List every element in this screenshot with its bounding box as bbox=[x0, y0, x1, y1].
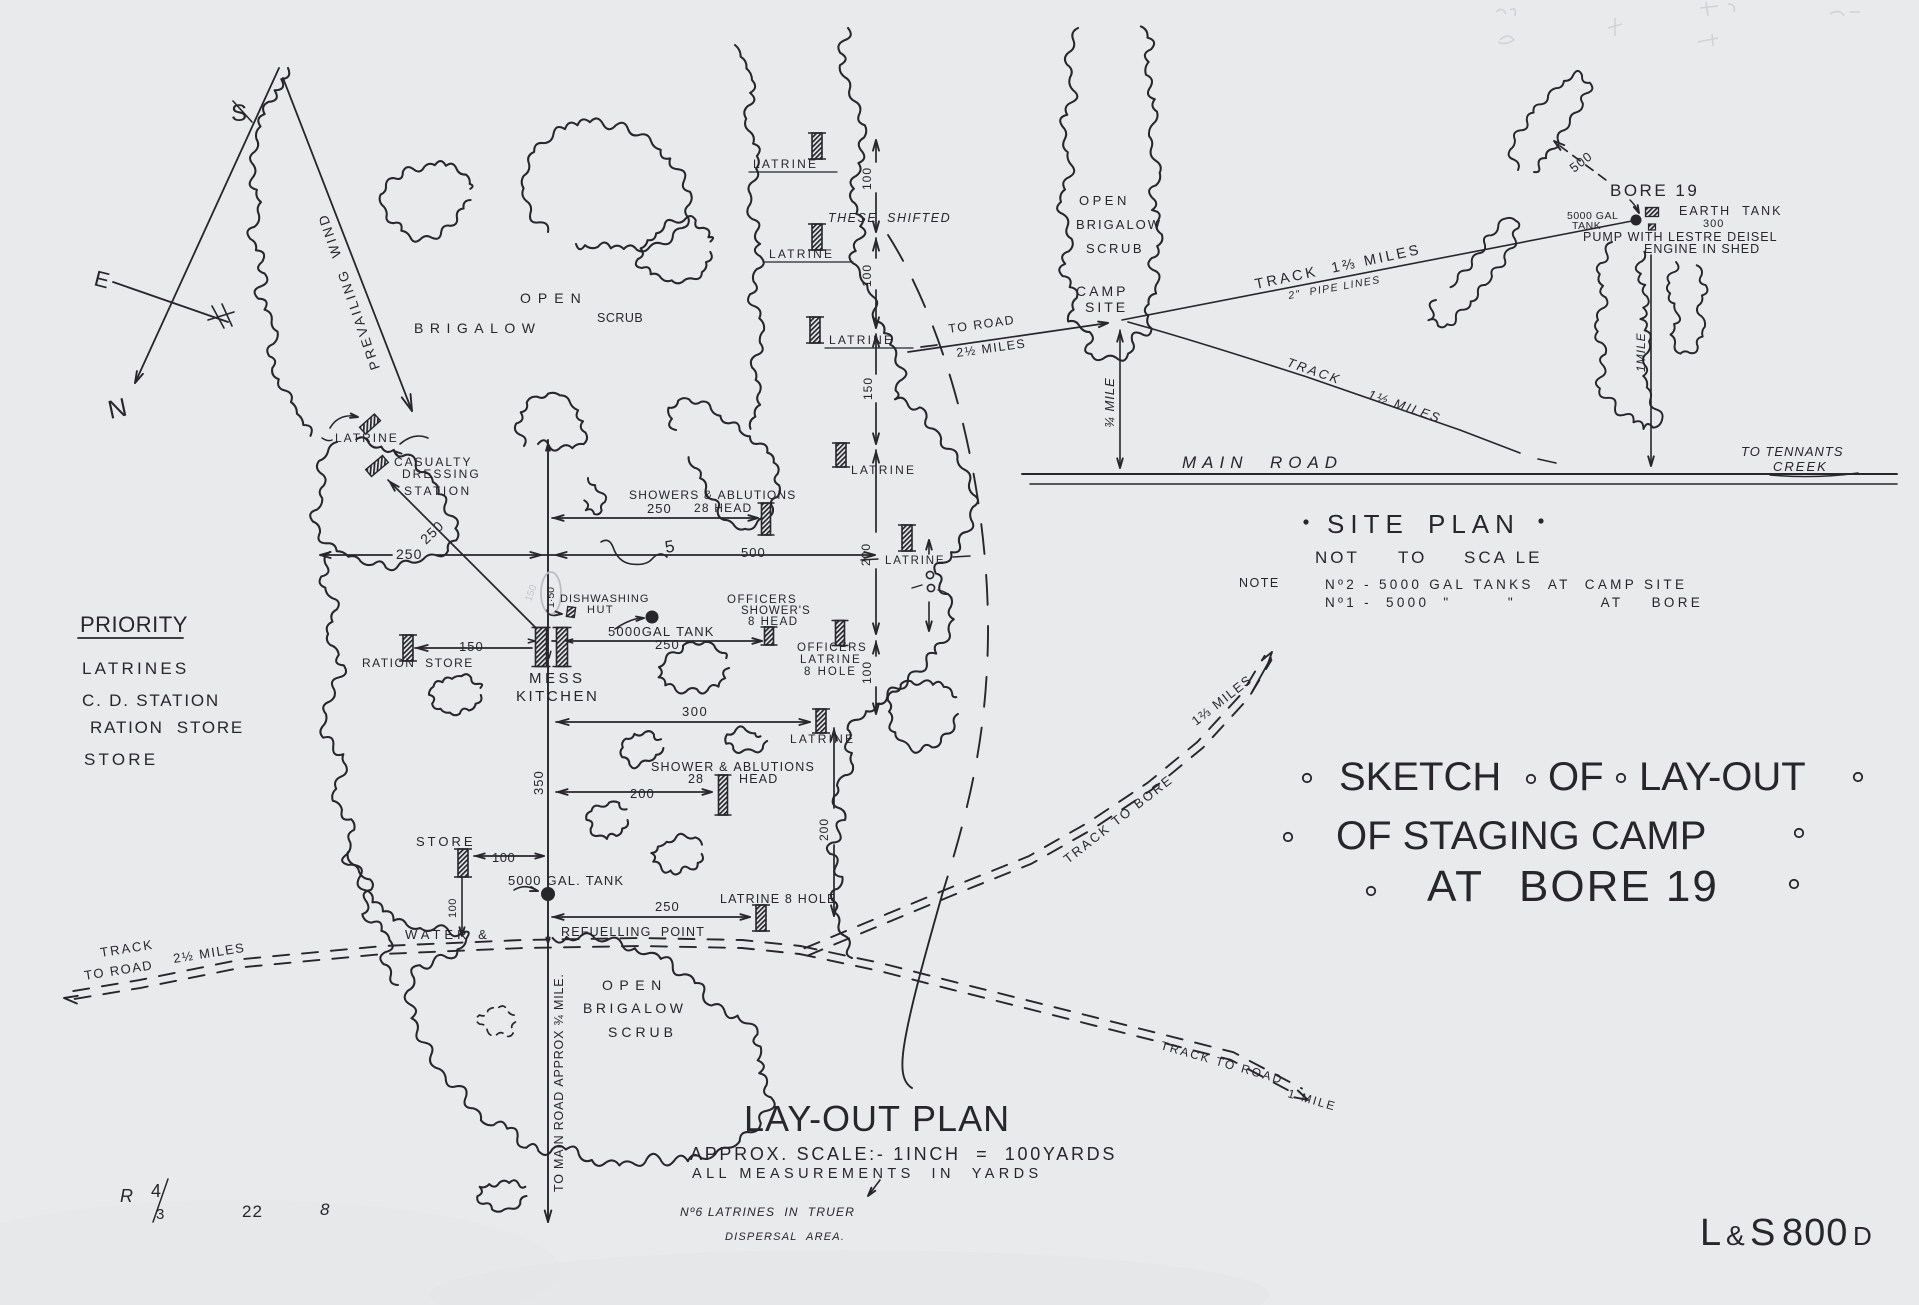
svg-text:SITE: SITE bbox=[1085, 299, 1128, 315]
svg-text:250: 250 bbox=[647, 501, 672, 516]
svg-text:LATRINE 8 HOLE: LATRINE 8 HOLE bbox=[720, 892, 837, 906]
svg-text:250: 250 bbox=[655, 899, 680, 914]
svg-text:150: 150 bbox=[861, 377, 875, 400]
svg-text:STATION: STATION bbox=[404, 484, 472, 498]
svg-text:TO: TO bbox=[1398, 548, 1427, 567]
svg-text:BRIGALOW: BRIGALOW bbox=[1076, 217, 1162, 232]
svg-text:APPROX. SCALE:- 1INCH = 100Y: APPROX. SCALE:- 1INCH = 100YARDS bbox=[690, 1144, 1117, 1164]
svg-text:EARTH TANK: EARTH TANK bbox=[1679, 204, 1783, 218]
svg-text:DISPERSAL AREA.: DISPERSAL AREA. bbox=[725, 1231, 845, 1243]
svg-text:LATRINE: LATRINE bbox=[851, 463, 916, 477]
svg-text:SCA LE: SCA LE bbox=[1464, 548, 1542, 567]
svg-text:LATRINE: LATRINE bbox=[335, 431, 399, 445]
svg-text:D: D bbox=[1853, 1221, 1872, 1251]
svg-text:500: 500 bbox=[741, 545, 766, 560]
svg-text:SHOWERS & ABLUTIONS: SHOWERS & ABLUTIONS bbox=[629, 488, 797, 502]
svg-text:LATRINE: LATRINE bbox=[800, 654, 862, 666]
svg-text:OPEN: OPEN bbox=[1079, 193, 1130, 208]
svg-text:OFFICERS: OFFICERS bbox=[797, 642, 867, 654]
svg-text:Nº2 - 5000 GAL TANKS AT CAMP: Nº2 - 5000 GAL TANKS AT CAMP SITE bbox=[1325, 577, 1687, 592]
svg-text:OPEN: OPEN bbox=[520, 290, 588, 306]
svg-text:8: 8 bbox=[320, 1200, 330, 1219]
svg-text:4: 4 bbox=[151, 1181, 161, 1201]
svg-text:300: 300 bbox=[682, 704, 708, 719]
svg-text:28: 28 bbox=[688, 772, 704, 786]
svg-text:L: L bbox=[1700, 1212, 1722, 1254]
svg-text:SITE: SITE bbox=[1327, 509, 1409, 539]
svg-text:SCRUB: SCRUB bbox=[597, 311, 643, 325]
svg-text:AT: AT bbox=[1427, 862, 1484, 911]
svg-text:KITCHEN: KITCHEN bbox=[516, 688, 599, 705]
svg-text:S: S bbox=[1750, 1212, 1776, 1254]
svg-text:C. D. STATION: C. D. STATION bbox=[82, 691, 220, 710]
svg-text:LATRINE: LATRINE bbox=[753, 157, 818, 171]
svg-text:100: 100 bbox=[860, 167, 874, 190]
svg-text:1·50: 1·50 bbox=[545, 587, 557, 608]
svg-text:&: & bbox=[1726, 1220, 1746, 1251]
svg-text:OPEN: OPEN bbox=[602, 977, 668, 993]
svg-text:PRIORITY: PRIORITY bbox=[80, 612, 188, 637]
svg-text:PLAN: PLAN bbox=[1428, 509, 1520, 539]
svg-text:HEAD: HEAD bbox=[739, 772, 779, 786]
svg-text:R: R bbox=[120, 1186, 133, 1206]
svg-text:LAY-OUT: LAY-OUT bbox=[1639, 755, 1806, 799]
svg-text:22: 22 bbox=[242, 1202, 263, 1221]
svg-text:200: 200 bbox=[630, 786, 655, 801]
svg-text:100: 100 bbox=[860, 661, 874, 684]
svg-text:TO TENNANTS: TO TENNANTS bbox=[1741, 444, 1844, 459]
svg-text:MAIN ROAD: MAIN ROAD bbox=[1182, 453, 1343, 472]
svg-text:BRIGALOW: BRIGALOW bbox=[414, 320, 541, 336]
svg-text:CREEK: CREEK bbox=[1773, 459, 1828, 474]
svg-text:LAY-OUT PLAN: LAY-OUT PLAN bbox=[744, 1098, 1010, 1139]
svg-text:300: 300 bbox=[1703, 218, 1724, 230]
svg-text:LATRINE: LATRINE bbox=[885, 555, 945, 567]
svg-text:8 HEAD: 8 HEAD bbox=[748, 616, 799, 628]
svg-text:5000 GAL. TANK: 5000 GAL. TANK bbox=[508, 873, 624, 888]
svg-text:Nº1 - 5000 " ": Nº1 - 5000 " " AT BORE bbox=[1325, 595, 1703, 610]
svg-text:ALL MEASUREMENTS IN YARDS: ALL MEASUREMENTS IN YARDS bbox=[692, 1166, 1043, 1182]
svg-text:LATRINE: LATRINE bbox=[829, 333, 894, 347]
svg-text:LATRINE: LATRINE bbox=[790, 732, 855, 746]
svg-text:RATION STORE: RATION STORE bbox=[90, 718, 244, 737]
svg-text:100: 100 bbox=[447, 898, 459, 918]
svg-text:NOTE: NOTE bbox=[1239, 576, 1280, 590]
svg-text:100: 100 bbox=[860, 264, 874, 287]
svg-text:STORE: STORE bbox=[416, 834, 476, 849]
svg-text:OF: OF bbox=[1548, 755, 1604, 799]
svg-text:HUT: HUT bbox=[587, 604, 614, 616]
svg-text:800: 800 bbox=[1782, 1212, 1848, 1254]
svg-text:ENGINE IN SHED: ENGINE IN SHED bbox=[1644, 242, 1760, 256]
svg-text:Nº6 LATRINES IN TRUER: Nº6 LATRINES IN TRUER bbox=[680, 1205, 855, 1219]
svg-text:250: 250 bbox=[655, 637, 680, 652]
svg-text:BORE 19: BORE 19 bbox=[1610, 181, 1699, 200]
svg-text:350: 350 bbox=[531, 770, 546, 795]
svg-text:200: 200 bbox=[817, 818, 831, 841]
svg-text:3: 3 bbox=[156, 1206, 164, 1223]
svg-text:250: 250 bbox=[396, 546, 422, 562]
svg-text:BORE 19: BORE 19 bbox=[1519, 862, 1719, 911]
svg-text:TO MAIN ROAD APPROX ¾ MILE.: TO MAIN ROAD APPROX ¾ MILE. bbox=[552, 973, 566, 1192]
svg-text:REFUELLING POINT: REFUELLING POINT bbox=[561, 925, 705, 939]
svg-text:SCRUB: SCRUB bbox=[1086, 241, 1144, 256]
svg-text:WATER &: WATER & bbox=[405, 927, 491, 942]
svg-text:CAMP: CAMP bbox=[1076, 283, 1128, 299]
svg-text:¾ MILE: ¾ MILE bbox=[1102, 377, 1117, 428]
svg-text:28 HEAD: 28 HEAD bbox=[694, 501, 752, 515]
svg-text:RATION STORE: RATION STORE bbox=[362, 656, 474, 670]
svg-text:STORE: STORE bbox=[84, 750, 158, 769]
svg-text:SHOWER & ABLUTIONS: SHOWER & ABLUTIONS bbox=[651, 760, 815, 774]
svg-text:BRIGALOW: BRIGALOW bbox=[583, 1000, 686, 1016]
svg-text:SCRUB: SCRUB bbox=[608, 1024, 677, 1040]
svg-text:DRESSING: DRESSING bbox=[402, 467, 481, 481]
svg-text:NOT: NOT bbox=[1315, 548, 1360, 567]
svg-text:SKETCH: SKETCH bbox=[1339, 755, 1501, 799]
svg-text:100: 100 bbox=[492, 850, 515, 865]
svg-text:OF STAGING CAMP: OF STAGING CAMP bbox=[1336, 814, 1706, 858]
svg-text:8 HOLE: 8 HOLE bbox=[804, 666, 857, 678]
svg-text:LATRINES: LATRINES bbox=[82, 659, 189, 678]
svg-text:MESS: MESS bbox=[529, 670, 586, 687]
svg-text:THESE SHIFTED: THESE SHIFTED bbox=[828, 211, 951, 225]
svg-text:150: 150 bbox=[459, 639, 484, 654]
svg-text:LATRINE: LATRINE bbox=[769, 247, 834, 261]
